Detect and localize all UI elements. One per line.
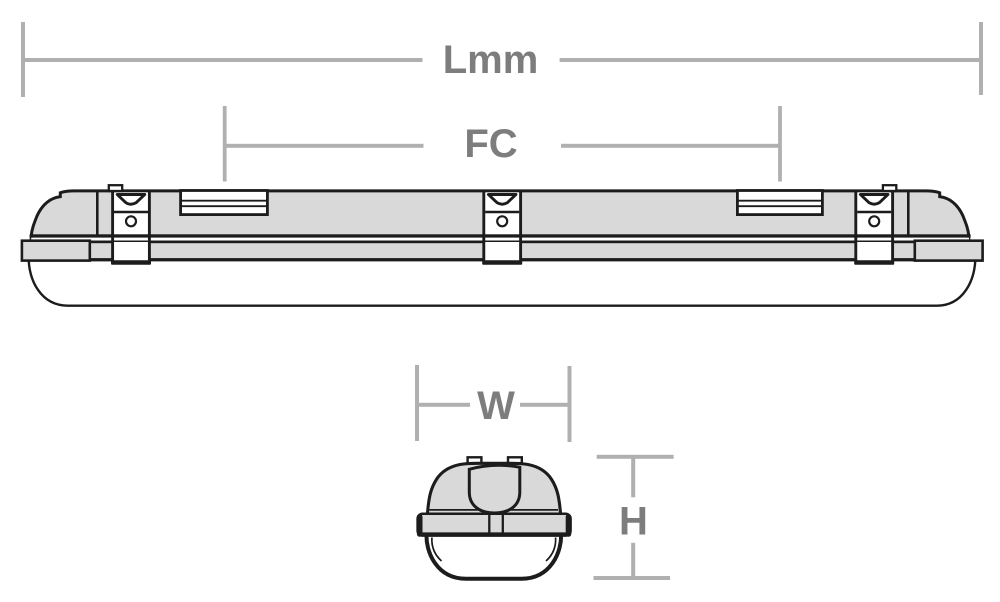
svg-text:Lmm: Lmm (443, 38, 539, 82)
svg-text:H: H (619, 500, 648, 544)
svg-text:FC: FC (464, 122, 517, 166)
svg-text:W: W (477, 384, 515, 428)
